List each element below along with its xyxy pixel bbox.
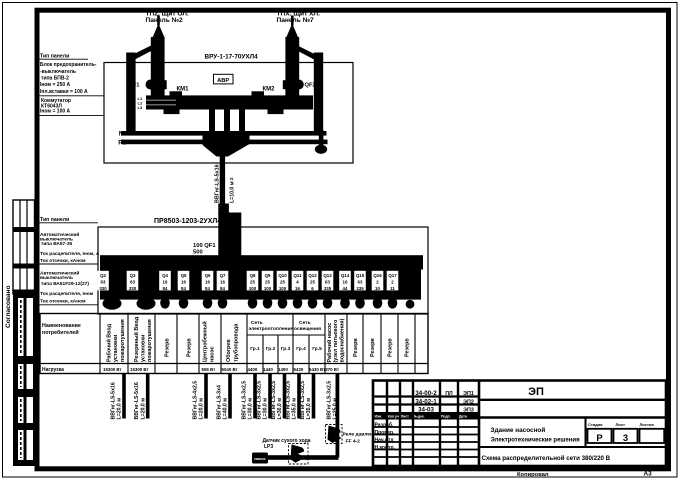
svg-text:Q10: Q10 [278, 273, 287, 278]
svg-text:водоснабжения): водоснабжения) [339, 318, 346, 362]
svg-text:370 Вт: 370 Вт [325, 367, 340, 372]
svg-text:Q7: Q7 [220, 273, 226, 278]
svg-text:Гр.2: Гр.2 [266, 346, 276, 352]
svg-text:16: 16 [163, 279, 168, 284]
svg-text:Q5: Q5 [181, 273, 187, 278]
svg-text:16: 16 [181, 279, 186, 284]
svg-text:ВВГнг-LS-5х16: ВВГнг-LS-5х16 [134, 382, 140, 419]
svg-text:Лист: Лист [401, 415, 409, 419]
svg-text:Q4: Q4 [162, 273, 168, 278]
svg-text:Согласовано: Согласовано [5, 285, 12, 328]
svg-text:Q16: Q16 [373, 273, 382, 278]
svg-text:84: 84 [163, 286, 168, 291]
svg-text:Iном = 100 А: Iном = 100 А [40, 109, 71, 115]
svg-text:типа ВА57-35: типа ВА57-35 [41, 241, 72, 247]
svg-text:Гр.5: Гр.5 [312, 346, 322, 352]
svg-text:1400: 1400 [278, 367, 288, 372]
svg-text:Листов: Листов [640, 422, 655, 427]
svg-text:Лист: Лист [616, 422, 625, 427]
svg-text:пожаротушения: пожаротушения [120, 319, 126, 362]
svg-text:Нагрузка: Нагрузка [42, 367, 64, 373]
svg-text:25: 25 [310, 279, 315, 284]
svg-text:L=20,0 м: L=20,0 м [199, 398, 205, 420]
svg-text:Iном = 250 А: Iном = 250 А [40, 82, 71, 88]
svg-text:335: 335 [324, 286, 332, 291]
svg-text:ВВГнг-LS-3х2,5: ВВГнг-LS-3х2,5 [285, 381, 291, 420]
svg-text:Изм.: Изм. [375, 415, 383, 419]
svg-text:Нач.отд: Нач.отд [375, 437, 395, 443]
svg-text:ПЛ: ПЛ [445, 391, 453, 397]
svg-text:Тип панели: Тип панели [40, 53, 69, 59]
svg-text:L=30,0 м: L=30,0 м [248, 398, 254, 420]
svg-text:Q12: Q12 [308, 273, 317, 278]
svg-text:15300 Вт: 15300 Вт [103, 367, 123, 372]
svg-text:Кол.уч: Кол.уч [388, 415, 399, 419]
svg-text:Панель №2: Панель №2 [146, 17, 183, 24]
svg-text:Q2: Q2 [100, 273, 106, 278]
svg-text:Резерв: Резерв [388, 338, 394, 357]
svg-text:84: 84 [220, 286, 225, 291]
svg-text:пожаротушения: пожаротушения [147, 319, 153, 362]
svg-text:ПР8503-1203-2УХЛ4: ПР8503-1203-2УХЛ4 [154, 218, 221, 225]
svg-text:Резерв: Резерв [353, 338, 359, 357]
svg-text:насос: насос [254, 456, 266, 461]
svg-text:L3: L3 [138, 105, 143, 110]
svg-text:ВВГнг-LS-5х16: ВВГнг-LS-5х16 [214, 164, 220, 203]
svg-text:5040 Вт: 5040 Вт [222, 367, 239, 372]
svg-text:Дата: Дата [459, 415, 467, 419]
svg-text:555 Вт: 555 Вт [202, 367, 217, 372]
svg-text:Iпл.вставки = 100 А: Iпл.вставки = 100 А [40, 89, 88, 95]
svg-text:Стадия: Стадия [588, 422, 603, 427]
svg-text:L=20,0 м: L=20,0 м [140, 398, 146, 420]
svg-text:63: 63 [358, 279, 363, 284]
svg-text:Панель №7: Панель №7 [277, 17, 314, 24]
svg-text:84: 84 [205, 286, 210, 291]
svg-text:4400: 4400 [248, 367, 258, 372]
svg-text:Рабочий насос: Рабочий насос [326, 323, 333, 363]
svg-text:L=35,0 м: L=35,0 м [292, 398, 298, 420]
svg-text:L=10,0 м: L=10,0 м [230, 181, 236, 203]
svg-text:Ток отсечки, кАном: Ток отсечки, кАном [40, 258, 86, 264]
svg-text:Разраб.: Разраб. [375, 421, 395, 428]
svg-text:Резерв: Резерв [405, 338, 411, 357]
svg-text:потребителей: потребителей [42, 329, 79, 336]
svg-text:63: 63 [325, 279, 330, 284]
svg-text:Q6: Q6 [205, 273, 211, 278]
svg-text:Резерв: Резерв [187, 338, 193, 357]
svg-text:235: 235 [356, 286, 364, 291]
svg-text:Обогрев: Обогрев [225, 339, 232, 362]
svg-text:100 QF1: 100 QF1 [193, 243, 216, 249]
svg-text:84: 84 [181, 286, 186, 291]
svg-text:Гр.4: Гр.4 [296, 346, 306, 352]
svg-text:Q3: Q3 [130, 273, 136, 278]
svg-text:16: 16 [220, 279, 225, 284]
svg-text:16: 16 [343, 279, 348, 284]
svg-text:100: 100 [279, 286, 287, 291]
svg-text:Провер.: Провер. [375, 430, 396, 436]
svg-text:Q11: Q11 [293, 273, 302, 278]
svg-text:5430 Вт: 5430 Вт [309, 367, 326, 372]
svg-text:25: 25 [250, 279, 255, 284]
svg-text:ЭП3: ЭП3 [463, 407, 474, 413]
svg-text:Сеть: Сеть [299, 320, 311, 326]
svg-text:установки: установки [113, 335, 119, 362]
svg-text:ЭП2: ЭП2 [463, 399, 474, 405]
svg-text:100: 100 [264, 286, 272, 291]
svg-text:Q13: Q13 [323, 273, 332, 278]
svg-text:Q8: Q8 [250, 273, 256, 278]
svg-text:ВВГнг-LS-3х2,5: ВВГнг-LS-3х2,5 [256, 381, 262, 420]
svg-text:44: 44 [343, 286, 348, 291]
svg-text:ВВГнг-LS-3х2,5: ВВГнг-LS-3х2,5 [271, 381, 277, 420]
svg-text:Q9: Q9 [265, 273, 271, 278]
svg-text:63: 63 [101, 279, 106, 284]
svg-text:Q17: Q17 [388, 273, 397, 278]
svg-text:выключатель: выключатель [40, 276, 73, 281]
svg-text:L=30,0 м: L=30,0 м [277, 398, 283, 420]
svg-text:-выключатель: -выключатель [40, 69, 76, 75]
svg-text:11: 11 [390, 286, 395, 291]
svg-text:АВР: АВР [217, 78, 229, 84]
svg-text:Подп.: Подп. [441, 415, 451, 419]
svg-text:34-02-1: 34-02-1 [415, 398, 437, 405]
svg-text:100: 100 [249, 286, 257, 291]
svg-text:LP3: LP3 [264, 444, 273, 450]
svg-text:L=30,0 м: L=30,0 м [263, 398, 269, 420]
svg-text:25: 25 [280, 279, 285, 284]
svg-text:КМ2: КМ2 [263, 86, 276, 92]
svg-text:Резерв: Резерв [370, 338, 376, 357]
svg-text:установки: установки [141, 335, 147, 362]
svg-text:Гр.1: Гр.1 [250, 346, 260, 352]
svg-text:Центробежный: Центробежный [201, 321, 208, 362]
svg-text:ВВГнг-LS-3х2,5: ВВГнг-LS-3х2,5 [241, 381, 247, 420]
svg-text:16: 16 [205, 279, 210, 284]
svg-text:L=35,0 м: L=35,0 м [306, 398, 312, 420]
svg-text:(узел питьевого: (узел питьевого [333, 319, 339, 362]
svg-text:QF1: QF1 [128, 83, 140, 89]
svg-text:ВВГнг-LS-3х2,5: ВВГнг-LS-3х2,5 [300, 381, 306, 420]
svg-text:16: 16 [295, 286, 300, 291]
svg-text:ВВГнг-LS-3х4: ВВГнг-LS-3х4 [216, 385, 222, 419]
svg-text:25: 25 [265, 279, 270, 284]
svg-text:Здание насосной: Здание насосной [491, 426, 546, 434]
svg-text:типа БПВ-2: типа БПВ-2 [41, 75, 69, 81]
svg-text:3: 3 [623, 432, 628, 443]
svg-text:5430: 5430 [294, 367, 304, 372]
svg-text:освещения: освещения [294, 327, 321, 332]
svg-text:электроотопления: электроотопления [249, 327, 294, 332]
svg-text:Электротехнические решения: Электротехнические решения [491, 438, 581, 444]
svg-text:Н.контр.: Н.контр. [375, 445, 396, 451]
svg-text:типа ВА61F29-12(27): типа ВА61F29-12(27) [41, 281, 89, 287]
svg-text:ЭП: ЭП [528, 386, 544, 398]
svg-text:Тип панели: Тип панели [40, 217, 69, 223]
svg-text:15300 Вт: 15300 Вт [130, 367, 150, 372]
svg-text:Гр.3: Гр.3 [281, 346, 291, 352]
svg-text:Резерв: Резерв [165, 338, 171, 357]
svg-text:Сеть: Сеть [251, 320, 263, 326]
svg-text:Резервный Ввод: Резервный Ввод [133, 316, 140, 362]
svg-text:ВВГнг-LS-5х16: ВВГнг-LS-5х16 [110, 382, 116, 419]
svg-text:Ток расцепителя, Iном, А: Ток расцепителя, Iном, А [40, 251, 100, 257]
svg-text:1440: 1440 [263, 367, 273, 372]
svg-text:Рабочий Ввод: Рабочий Ввод [106, 323, 113, 362]
svg-text:10: 10 [375, 286, 380, 291]
svg-text:QF2: QF2 [305, 83, 316, 89]
svg-text:Q14: Q14 [341, 273, 350, 278]
svg-text:Q15: Q15 [356, 273, 365, 278]
svg-text:ВВГнг-LS-4х2,5: ВВГнг-LS-4х2,5 [192, 381, 198, 420]
svg-text:Наименование: Наименование [42, 323, 81, 329]
svg-text:34-00-2: 34-00-2 [415, 390, 437, 397]
svg-text:ВВГнг-LS-3х2,5: ВВГнг-LS-3х2,5 [326, 381, 332, 420]
svg-text:63: 63 [130, 279, 135, 284]
svg-text:L=40,0 м: L=40,0 м [223, 398, 229, 420]
svg-text:ЭП1: ЭП1 [463, 391, 474, 397]
svg-text:Копировал: Копировал [517, 472, 549, 478]
svg-text:Р: Р [596, 432, 602, 443]
svg-text:№док.: №док. [414, 415, 425, 419]
svg-text:Ток отсечки, кАном: Ток отсечки, кАном [40, 299, 86, 305]
svg-text:34-03: 34-03 [418, 406, 434, 413]
svg-text:Блок предохранитель-: Блок предохранитель- [40, 62, 97, 68]
svg-text:ВРУ-1-17-70УХЛ4: ВРУ-1-17-70УХЛ4 [205, 53, 259, 60]
svg-text:330: 330 [99, 286, 107, 291]
svg-text:330: 330 [129, 286, 137, 291]
svg-text:500: 500 [193, 249, 203, 255]
svg-text:Датчик сухого хода: Датчик сухого хода [263, 438, 311, 444]
svg-text:трубопровода: трубопровода [232, 323, 239, 362]
svg-text:L=20,0 м: L=20,0 м [117, 398, 123, 420]
svg-text:А3: А3 [644, 471, 653, 478]
svg-text:FF 4-2: FF 4-2 [346, 438, 361, 444]
svg-text:Ток расцепителя, Iном: Ток расцепителя, Iном [40, 291, 94, 297]
svg-text:Схема распределительной сети 3: Схема распределительной сети 380/220 В [482, 455, 611, 462]
svg-text:насос: насос [210, 347, 216, 362]
